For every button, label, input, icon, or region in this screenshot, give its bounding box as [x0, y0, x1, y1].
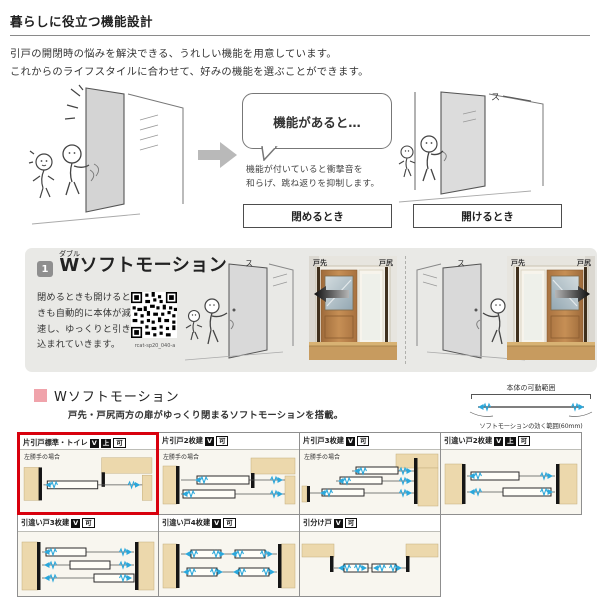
catalog-page: { "header": { "title": "暮らしに役立つ機能設計" }, … [0, 0, 600, 600]
cell-title: 片引戸3枚建 [303, 436, 344, 446]
plan-diagram [18, 532, 158, 596]
badge-v: V [90, 439, 99, 448]
badge-ka: 可 [357, 436, 370, 446]
range-title: 本体の可動範囲 [466, 383, 596, 393]
panel-divider [405, 256, 406, 364]
page-title: 暮らしに役立つ機能設計 [10, 11, 153, 30]
cell-hikichigai-2mai: 引違い戸2枚建 V 上 可 [440, 432, 582, 515]
cell-hikiwake-do: 引分け戸 V 可 [299, 514, 441, 597]
cell-diagram-area [159, 531, 299, 596]
cell-kata-hikido-standard: 片引戸標準・トイレ V 上 可 左勝手の場合 [17, 432, 159, 515]
feature-title-ruby: ダブル [59, 250, 80, 258]
speech-bubble-text: 機能があると… [273, 112, 361, 131]
caption-line-1: 機能が付いていると衝撃音を [246, 165, 363, 175]
door-photo-closing: 戸先 戸尻 [309, 256, 397, 360]
cell-header: 引分け戸 V 可 [300, 515, 440, 531]
soft-motion-subtext: 戸先・戸尻両方の扉がゆっくり閉まるソフトモーションを搭載。 [68, 407, 343, 421]
cell-diagram-area: 左勝手の場合 [300, 449, 440, 514]
badge-v: V [71, 519, 80, 528]
cell-header: 引違い戸4枚建 V 可 [159, 515, 299, 531]
badge-ue: 上 [101, 439, 112, 448]
cell-kata-hikido-2mai: 片引戸2枚建 V 可 左勝手の場合 [158, 432, 300, 515]
door-photo-art [507, 256, 595, 360]
badge-v: V [212, 519, 221, 528]
sfx-text: ス [457, 259, 465, 268]
cell-title: 引違い戸3枚建 [21, 518, 69, 528]
badge-v: V [346, 437, 355, 446]
table-row: 引違い戸3枚建 V 可 [17, 515, 585, 597]
range-note: ソフトモーションの効く範囲(60mm) [466, 421, 596, 430]
cell-header: 引違い戸3枚建 V 可 [18, 515, 158, 531]
header-divider [10, 35, 590, 36]
cell-diagram-area [300, 531, 440, 596]
intro-line-1: 引戸の開閉時の悩みを解決できる、うれしい機能を用意しています。 [10, 45, 337, 60]
door-slam-illustration [28, 84, 203, 236]
qr-caption: rcat-sp20_040-a [131, 343, 179, 349]
plan-diagram [300, 532, 440, 596]
badge-v: V [494, 437, 503, 446]
speech-bubble-tail [259, 146, 279, 161]
badge-ue: 上 [505, 437, 516, 446]
cell-note: 左勝手の場合 [163, 452, 199, 461]
badge-ka: 可 [223, 518, 236, 528]
speech-bubble: 機能があると… [242, 93, 392, 149]
cell-note: 左勝手の場合 [304, 452, 340, 461]
door-rear-label: 戸尻 [379, 258, 393, 268]
cell-hikichigai-3mai: 引違い戸3枚建 V 可 [17, 514, 159, 597]
cell-note: 左勝手の場合 [24, 452, 60, 461]
cell-diagram-area [441, 449, 581, 514]
door-photo-art [309, 256, 397, 360]
cell-title: 片引戸標準・トイレ [23, 438, 88, 448]
cell-title: 片引戸2枚建 [162, 436, 203, 446]
range-line [466, 399, 596, 417]
door-smooth-illustration: ス [393, 86, 565, 206]
badge-ka: 可 [345, 518, 358, 528]
qr-code [131, 292, 177, 338]
transition-arrow-icon [198, 140, 238, 170]
cell-hikichigai-4mai: 引違い戸4枚建 V 可 [158, 514, 300, 597]
badge-ka: 可 [216, 436, 229, 446]
badge-v: V [334, 519, 343, 528]
cell-title: 引分け戸 [303, 518, 332, 528]
cell-kata-hikido-3mai: 片引戸3枚建 V 可 左勝手の場合 [299, 432, 441, 515]
w-soft-motion-panel: 1 Wダブルソフトモーション 閉めるときも開けるときも自動的に本体が減速し、ゆっ… [25, 248, 597, 372]
configuration-table: 片引戸標準・トイレ V 上 可 左勝手の場合 [17, 432, 585, 597]
sfx-text: ス [491, 93, 500, 103]
pink-square-bullet [34, 389, 47, 402]
badge-ka: 可 [518, 436, 531, 446]
door-rear-label: 戸尻 [577, 258, 591, 268]
cell-diagram-area: 左勝手の場合 [20, 449, 156, 512]
qr-code-block: rcat-sp20_040-a [131, 292, 179, 349]
cell-header: 引違い戸2枚建 V 上 可 [441, 433, 581, 449]
table-row: 片引戸標準・トイレ V 上 可 左勝手の場合 [17, 432, 585, 515]
cell-header: 片引戸2枚建 V 可 [159, 433, 299, 449]
label-when-opening: 開けるとき [413, 204, 562, 228]
feature-caption: 機能が付いていると衝撃音を 和らげ、跳ね返りを抑制します。 [246, 164, 379, 191]
range-diagram: 本体の可動範囲 ソフトモーションの効く範囲(60mm) [466, 383, 596, 430]
cell-diagram-area: 左勝手の場合 [159, 449, 299, 514]
door-front-label: 戸先 [313, 258, 327, 268]
plan-diagram [159, 532, 299, 596]
plan-diagram [441, 450, 581, 514]
feature-number-badge: 1 [37, 261, 53, 277]
cell-title: 引違い戸2枚建 [444, 436, 492, 446]
cell-title: 引違い戸4枚建 [162, 518, 210, 528]
cell-diagram-area [18, 531, 158, 596]
caption-line-2: 和らげ、跳ね返りを抑制します。 [246, 179, 379, 189]
cell-header: 片引戸3枚建 V 可 [300, 433, 440, 449]
label-when-closing: 閉めるとき [243, 204, 392, 228]
soft-motion-heading: Wソフトモーション [54, 386, 180, 405]
badge-ka: 可 [113, 438, 126, 448]
feature-description: 閉めるときも開けるときも自動的に本体が減速し、ゆっくりと引き込まれていきます。 [37, 290, 133, 353]
badge-ka: 可 [82, 518, 95, 528]
badge-v: V [205, 437, 214, 446]
closing-scene-illustration: ス [183, 258, 297, 362]
sfx-text: ス [245, 259, 253, 268]
feature-title-w: W [59, 255, 80, 276]
door-photo-opening: 戸先 戸尻 [507, 256, 595, 360]
intro-line-2: これからのライフスタイルに合わせて、好みの機能を選ぶことができます。 [10, 63, 369, 78]
door-front-label: 戸先 [511, 258, 525, 268]
